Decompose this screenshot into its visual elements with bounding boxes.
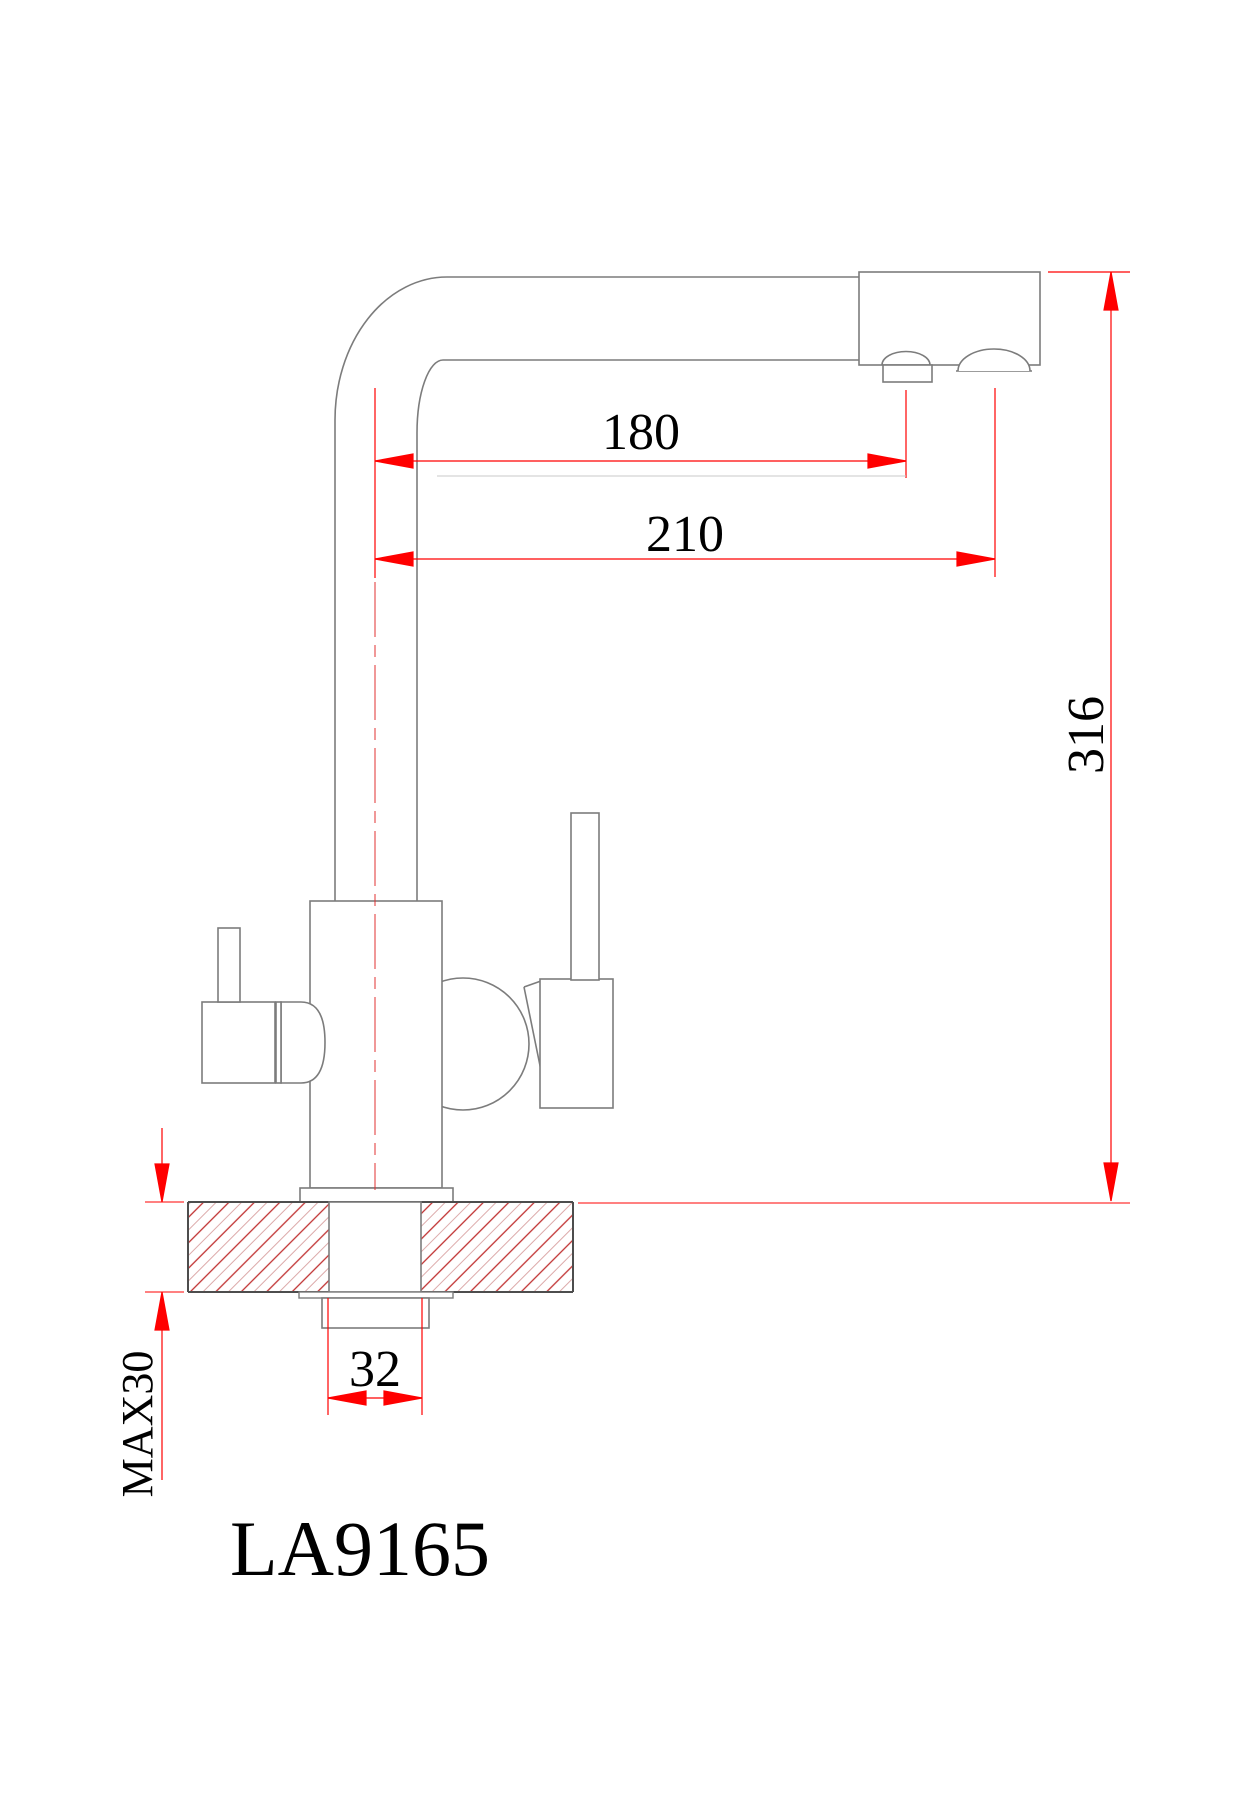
washer-plate — [299, 1292, 453, 1298]
right-valve-joint-top — [524, 981, 541, 987]
dim-max30-arrow-up — [155, 1292, 169, 1330]
right-handle-lever — [571, 813, 599, 980]
left-valve-ring — [276, 1002, 281, 1083]
dim-180-arrow-left — [375, 454, 413, 468]
model-number: LA9165 — [230, 1505, 490, 1592]
faucet-dimension-diagram: 180 210 316 32 MAX30 LA9165 — [0, 0, 1255, 1800]
dim-180-arrow-right — [868, 454, 906, 468]
dim-316-arrow-bottom — [1104, 1163, 1118, 1201]
technical-drawing-page: 180 210 316 32 MAX30 LA9165 — [0, 0, 1255, 1800]
aerator-small-box — [883, 365, 932, 382]
faucet-body-block — [310, 901, 442, 1188]
left-valve-cap — [202, 1002, 275, 1083]
base-flange — [300, 1188, 453, 1202]
label-total-reach: 210 — [646, 506, 724, 563]
faucet-shank — [329, 1202, 421, 1292]
right-valve-cap — [540, 979, 613, 1108]
label-overall-height: 316 — [1058, 696, 1115, 774]
left-handle-lever — [218, 928, 240, 1002]
label-spout-reach: 180 — [602, 404, 680, 461]
dim-max30-arrow-down — [155, 1164, 169, 1202]
dim-210-arrow-left — [375, 552, 413, 566]
countertop-section — [188, 1202, 573, 1328]
dim-316-arrow-top — [1104, 272, 1118, 310]
spout-outer-edge — [335, 277, 859, 901]
dimension-labels: 180 210 316 32 MAX30 LA9165 — [113, 404, 1115, 1592]
spout-head — [859, 272, 1040, 365]
dim-210-arrow-right — [957, 552, 995, 566]
countertop-hatch-right — [421, 1202, 573, 1292]
label-counter-thickness-max: MAX30 — [113, 1351, 162, 1498]
mounting-nut — [322, 1298, 429, 1328]
label-shank-width: 32 — [349, 1341, 401, 1398]
countertop-hatch-left — [188, 1202, 329, 1292]
left-valve-nose — [281, 1002, 325, 1083]
